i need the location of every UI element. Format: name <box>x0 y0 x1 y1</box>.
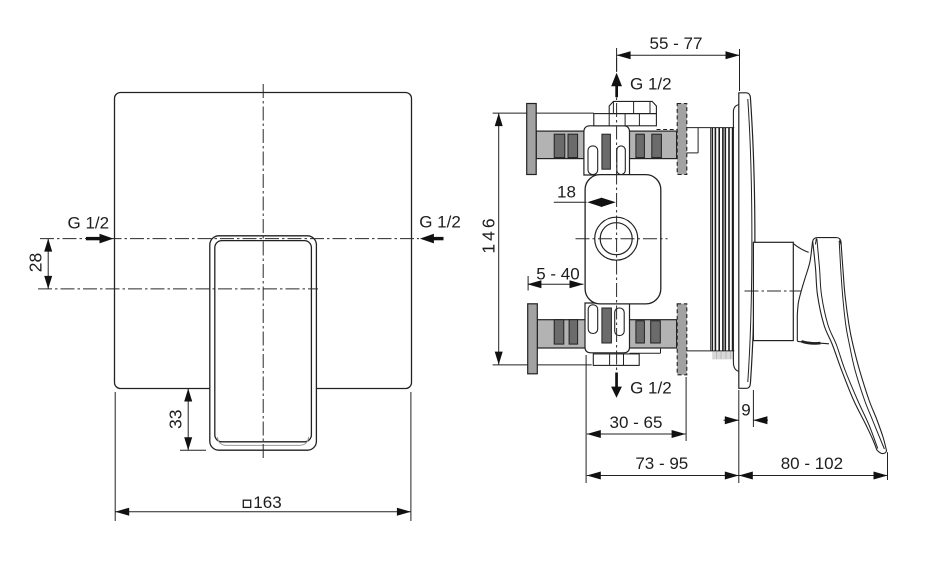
svg-text:G 1/2: G 1/2 <box>630 379 672 398</box>
svg-text:28: 28 <box>26 253 46 272</box>
svg-text:9: 9 <box>741 401 750 420</box>
svg-text:G 1/2: G 1/2 <box>419 213 461 232</box>
svg-text:G 1/2: G 1/2 <box>68 214 110 233</box>
svg-text:80 - 102: 80 - 102 <box>781 454 843 473</box>
svg-text:G 1/2: G 1/2 <box>630 75 672 94</box>
svg-text:30 - 65: 30 - 65 <box>610 413 663 432</box>
svg-text:5 - 40: 5 - 40 <box>536 265 579 284</box>
svg-text:33: 33 <box>166 410 186 429</box>
svg-text:73 - 95: 73 - 95 <box>635 454 688 473</box>
svg-text:18: 18 <box>557 183 576 202</box>
svg-text:55 - 77: 55 - 77 <box>650 34 703 53</box>
svg-text:146: 146 <box>479 215 499 253</box>
svg-text:163: 163 <box>253 493 281 512</box>
